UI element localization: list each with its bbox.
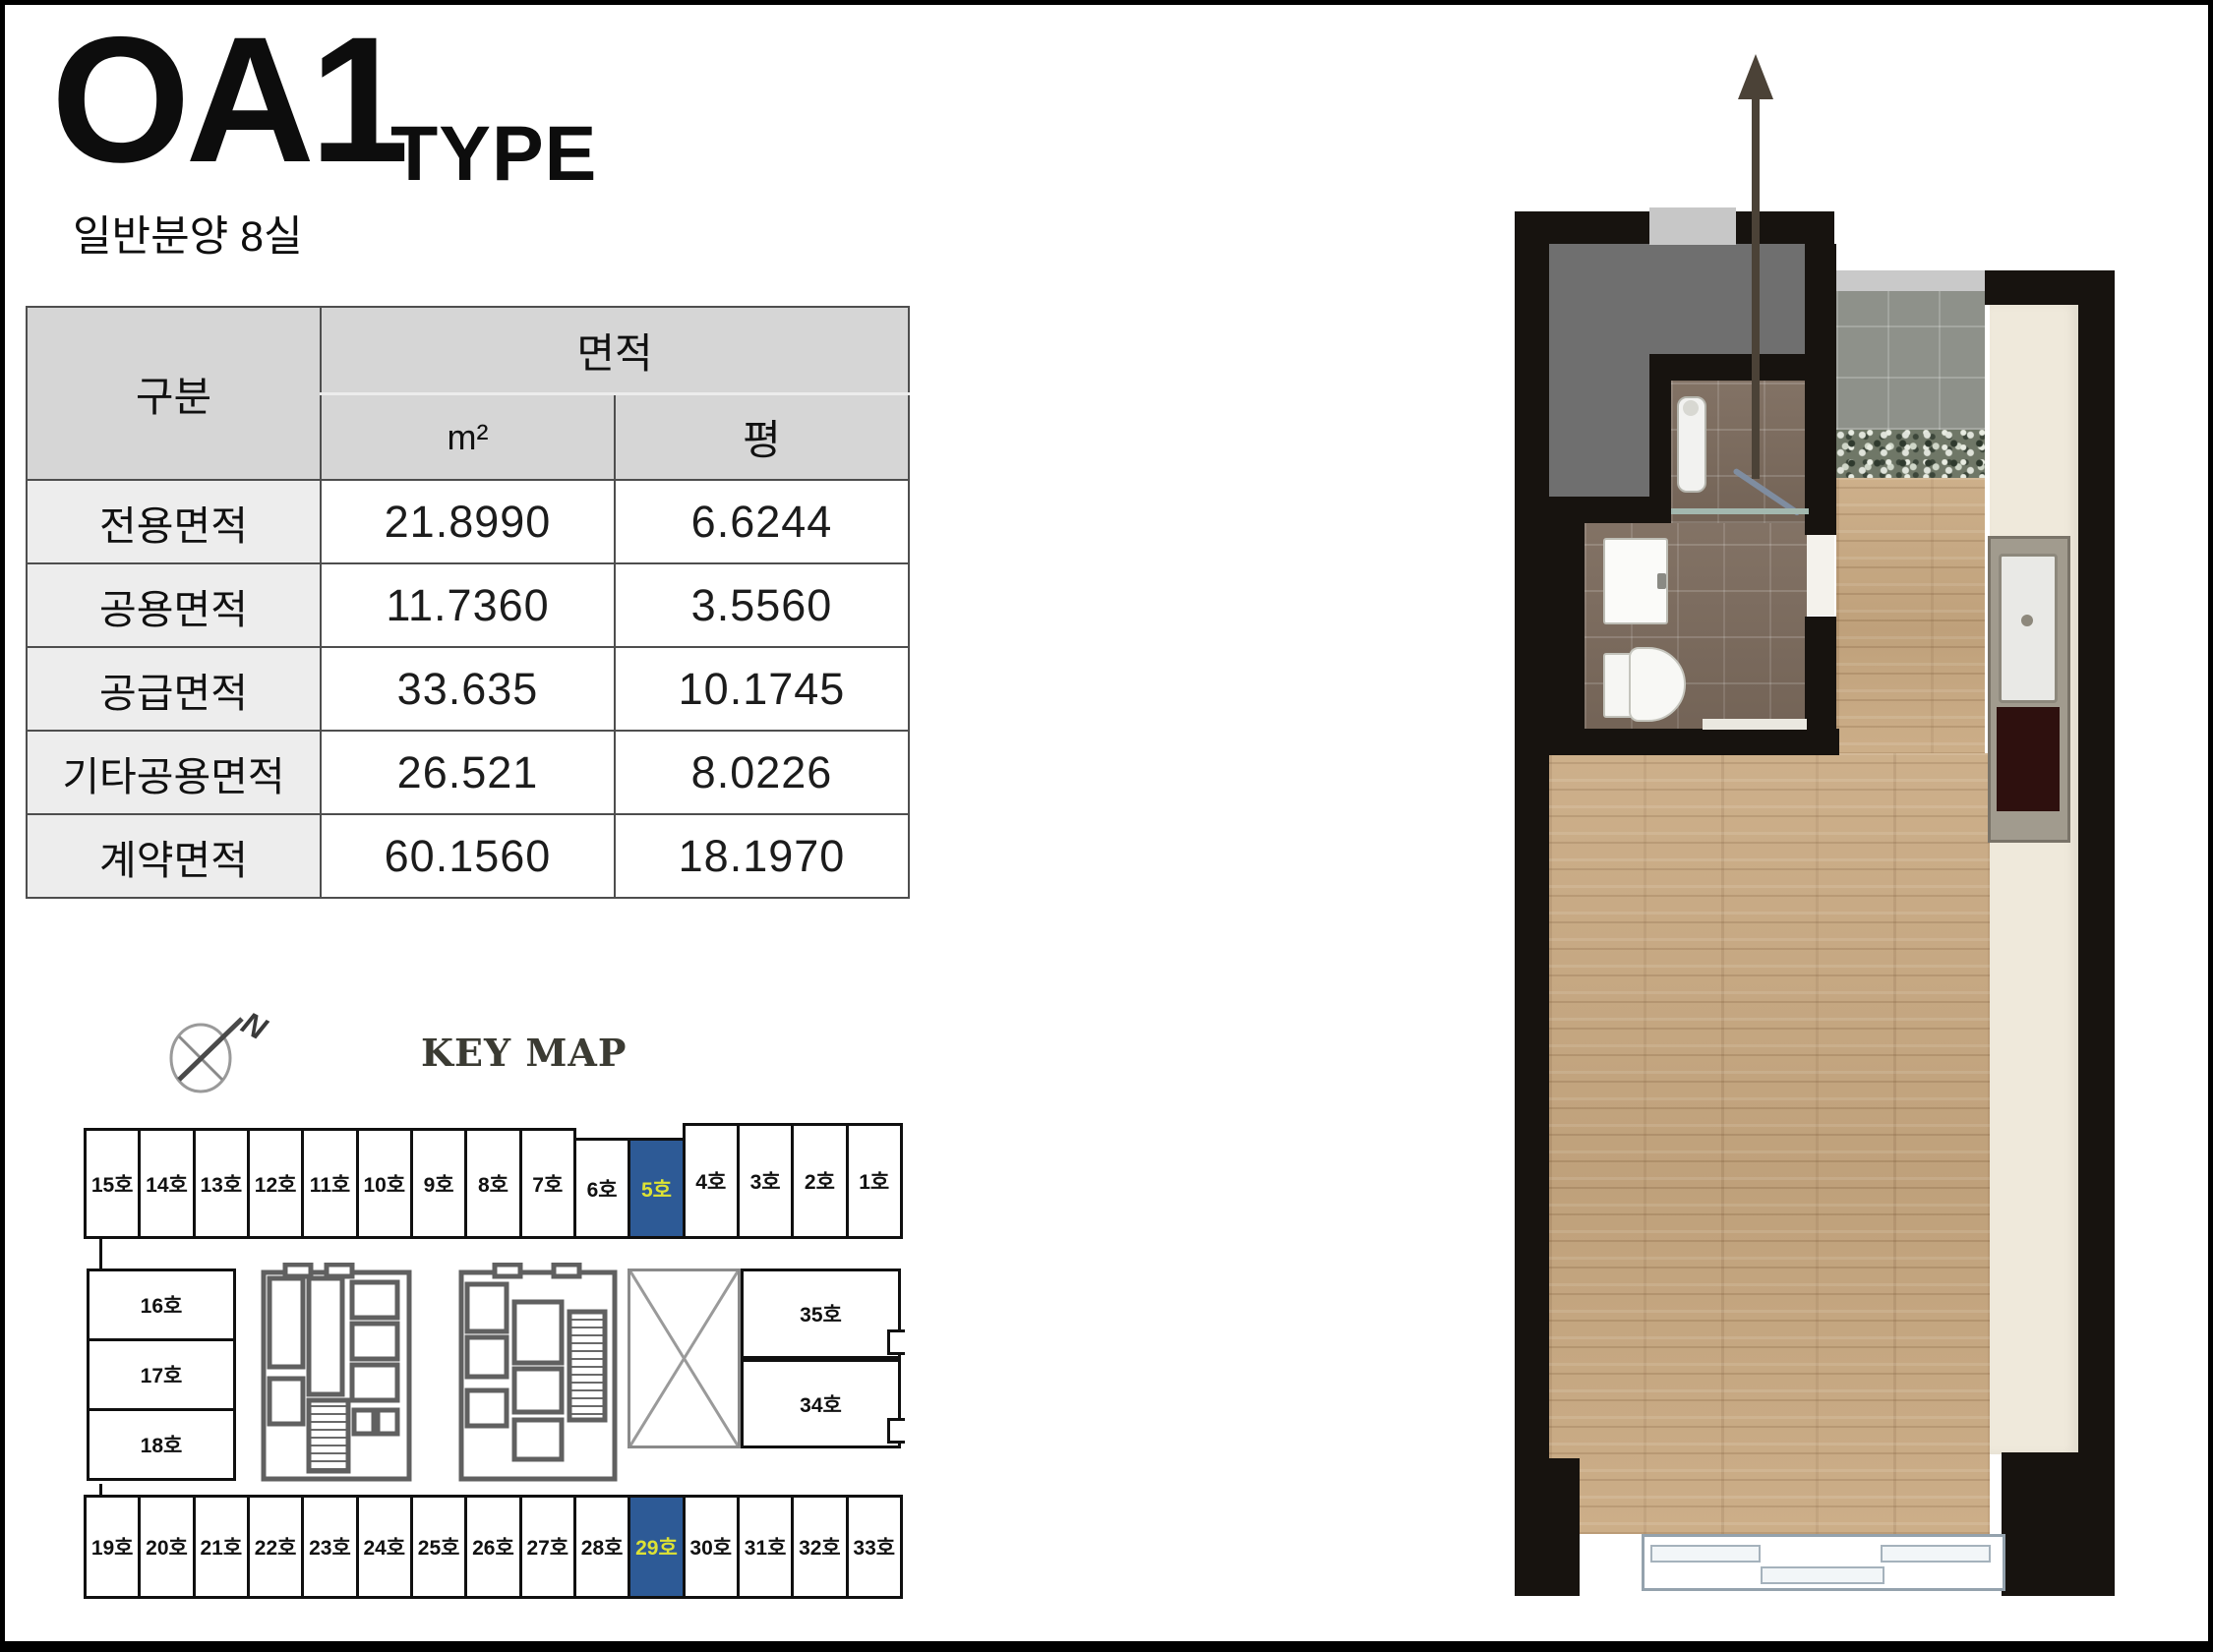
keymap-unit-7: 7호	[519, 1128, 576, 1239]
keymap-unit-34: 34호	[741, 1359, 901, 1448]
keymap-unit-27: 27호	[519, 1495, 576, 1599]
compass-north-label: N	[236, 1005, 273, 1047]
keymap-unit-28: 28호	[573, 1495, 630, 1599]
col-category: 구분	[27, 307, 321, 480]
wall-right	[2078, 270, 2115, 1466]
keymap-wall-notch	[887, 1329, 905, 1355]
wall-bathroom-bottom	[1584, 729, 1839, 755]
wall-bottom-right-stub	[2002, 1452, 2115, 1596]
keymap-unit-33: 33호	[846, 1495, 903, 1599]
window-pane	[1761, 1566, 1884, 1584]
entrance-door	[1649, 207, 1736, 245]
keymap-unit-3: 3호	[737, 1123, 794, 1239]
keymap-connector-line	[99, 1237, 102, 1270]
keymap-unit-31: 31호	[737, 1495, 794, 1599]
window-bottom	[1642, 1534, 2005, 1591]
area-pyeong-value: 6.6244	[615, 480, 909, 563]
area-table: 구분 면적 m² 평 전용면적21.89906.6244공용면적11.73603…	[26, 306, 910, 899]
keymap-unit-32: 32호	[791, 1495, 848, 1599]
keymap-void-area	[628, 1268, 741, 1448]
area-m2-value: 33.635	[321, 647, 615, 731]
area-pyeong-value: 10.1745	[615, 647, 909, 731]
utility-tile-floor	[1836, 291, 1985, 430]
wood-floor-main-room	[1549, 753, 1990, 1534]
area-row-label: 기타공용면적	[27, 731, 321, 814]
keymap-bottom-row: 19호20호21호22호23호24호25호26호27호28호29호30호31호3…	[84, 1495, 900, 1599]
wood-floor-corridor	[1836, 478, 1985, 754]
col-m2: m²	[321, 394, 615, 481]
keymap-unit-21: 21호	[193, 1495, 250, 1599]
keymap-unit-9: 9호	[410, 1128, 467, 1239]
area-row-label: 계약면적	[27, 814, 321, 898]
stove	[1997, 707, 2060, 811]
compass-icon: N	[155, 1001, 273, 1105]
window-pane	[1881, 1545, 1991, 1563]
col-pyeong: 평	[615, 394, 909, 481]
corridor-window-sill	[1836, 270, 1985, 291]
keymap-left-column: 16호17호18호	[87, 1268, 236, 1478]
keymap-wall-notch	[887, 1418, 905, 1444]
col-area: 면적	[321, 307, 909, 394]
keymap-unit-30: 30호	[683, 1495, 740, 1599]
keymap-unit-35: 35호	[741, 1268, 901, 1359]
unit-type-suffix: TYPE	[390, 114, 597, 192]
wall-bathroom-left-lower	[1547, 497, 1585, 755]
washbasin-faucet	[1657, 573, 1666, 589]
keymap-unit-12: 12호	[247, 1128, 304, 1239]
keymap-unit-18: 18호	[87, 1408, 236, 1481]
north-arrow-shaft	[1752, 95, 1760, 479]
area-row-label: 전용면적	[27, 480, 321, 563]
area-table-row-4: 계약면적60.156018.1970	[27, 814, 909, 898]
keymap-core-block-2	[455, 1263, 621, 1489]
keymap-unit-2: 2호	[791, 1123, 848, 1239]
area-table-body: 전용면적21.89906.6244공용면적11.73603.5560공급면적33…	[27, 480, 909, 898]
brochure-page: OA1 TYPE 일반분양 8실 구분 면적 m² 평 전용면적21.89906…	[0, 0, 2213, 1652]
area-pyeong-value: 3.5560	[615, 563, 909, 647]
sale-subtitle: 일반분양 8실	[73, 203, 303, 264]
keymap-unit-4: 4호	[683, 1123, 740, 1239]
wall-divider-upper	[1805, 244, 1836, 535]
keymap-title: KEY MAP	[421, 1031, 627, 1075]
keymap-unit-15: 15호	[84, 1128, 141, 1239]
area-pyeong-value: 18.1970	[615, 814, 909, 898]
keymap-unit-6: 6호	[573, 1138, 630, 1239]
keymap-unit-23: 23호	[301, 1495, 358, 1599]
keymap-unit-14: 14호	[138, 1128, 195, 1239]
keymap-unit-29: 29호	[628, 1495, 685, 1599]
shower-partition-line	[1671, 508, 1809, 514]
keymap-unit-label: 35호	[800, 1299, 842, 1328]
area-table-row-2: 공급면적33.63510.1745	[27, 647, 909, 731]
area-m2-value: 26.521	[321, 731, 615, 814]
kitchen-sink	[1999, 554, 2058, 703]
keymap-unit-19: 19호	[84, 1495, 141, 1599]
sink-drain	[2021, 615, 2033, 626]
wall-bottom-left-stub	[1515, 1458, 1580, 1596]
keymap-top-row: 15호14호13호12호11호10호9호8호7호6호5호4호3호2호1호	[84, 1123, 900, 1239]
keymap-unit-22: 22호	[247, 1495, 304, 1599]
keymap-unit-13: 13호	[193, 1128, 250, 1239]
keymap-unit-label: 34호	[800, 1389, 842, 1419]
area-m2-value: 60.1560	[321, 814, 615, 898]
bathroom-door-opening	[1807, 535, 1834, 616]
area-table-row-0: 전용면적21.89906.6244	[27, 480, 909, 563]
keymap-unit-10: 10호	[356, 1128, 413, 1239]
unit-floor-plan	[1510, 54, 2115, 1603]
area-table-row-1: 공용면적11.73603.5560	[27, 563, 909, 647]
x-cross-icon	[630, 1271, 738, 1445]
bathroom-threshold	[1703, 719, 1807, 730]
north-arrow-icon	[1738, 54, 1773, 99]
entry-hall-floor	[1549, 244, 1651, 499]
keymap-unit-11: 11호	[301, 1128, 358, 1239]
keymap-unit-17: 17호	[87, 1338, 236, 1411]
unit-type-title: OA1	[51, 10, 404, 189]
area-m2-value: 21.8990	[321, 480, 615, 563]
shower-head	[1683, 400, 1699, 416]
keymap-core-block-1	[258, 1263, 415, 1489]
area-pyeong-value: 8.0226	[615, 731, 909, 814]
area-row-label: 공급면적	[27, 647, 321, 731]
wall-bathroom-top	[1649, 354, 1815, 381]
keymap-unit-25: 25호	[410, 1495, 467, 1599]
window-pane	[1650, 1545, 1761, 1563]
keymap-unit-5: 5호	[628, 1138, 685, 1239]
area-table-row-3: 기타공용면적26.5218.0226	[27, 731, 909, 814]
area-row-label: 공용면적	[27, 563, 321, 647]
keymap-unit-20: 20호	[138, 1495, 195, 1599]
keymap-unit-24: 24호	[356, 1495, 413, 1599]
keymap-unit-16: 16호	[87, 1268, 236, 1341]
wall-left	[1515, 211, 1549, 1593]
pebble-drain-strip	[1836, 430, 1985, 478]
keymap-unit-1: 1호	[846, 1123, 903, 1239]
balcony-strip	[1990, 304, 2078, 1454]
keymap-unit-8: 8호	[464, 1128, 521, 1239]
area-m2-value: 11.7360	[321, 563, 615, 647]
keymap-unit-26: 26호	[464, 1495, 521, 1599]
